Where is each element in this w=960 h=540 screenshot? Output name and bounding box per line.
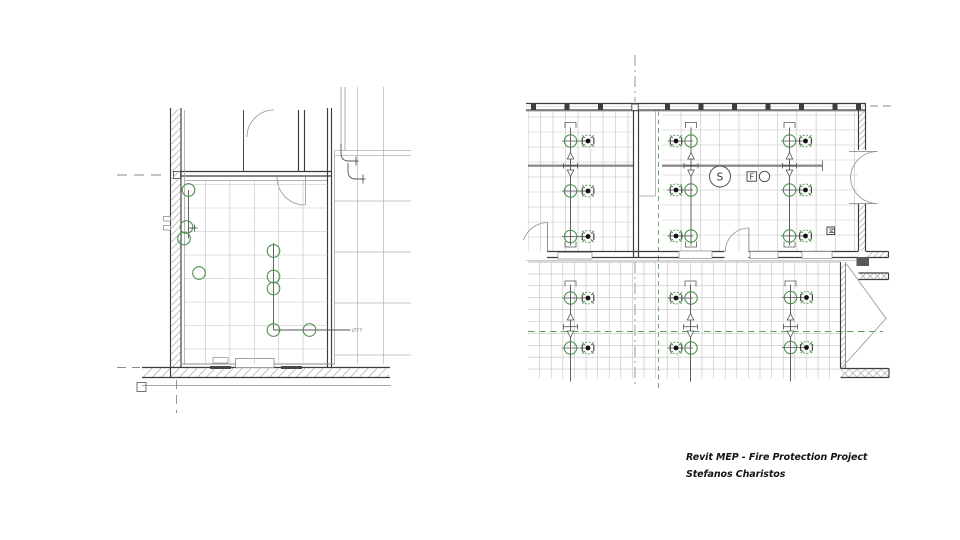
project-title: Revit MEP - Fire Protection Project	[686, 449, 867, 466]
entry-details	[210, 358, 302, 370]
wall-corner-block	[857, 257, 870, 266]
pipe-end-bracket	[565, 123, 576, 129]
door-swings	[247, 110, 306, 205]
sprinkler-head	[193, 267, 206, 280]
sprinkler-pair	[782, 341, 813, 353]
wall-hatch	[841, 105, 889, 378]
title-block: Revit MEP - Fire Protection Project Stef…	[686, 449, 867, 483]
corridor-grid	[335, 87, 412, 364]
grid-bubble	[137, 383, 146, 392]
wall-jambs	[164, 217, 171, 231]
sprinkler-pair	[668, 184, 698, 196]
ceiling-grid	[185, 181, 328, 364]
sprinkler-pair	[668, 342, 698, 354]
smoke-detector-symbol: S	[710, 166, 731, 187]
sprinkler-pair	[668, 135, 698, 147]
mullion	[531, 104, 536, 111]
mullion	[565, 104, 570, 111]
sprinkler-pair	[562, 342, 594, 354]
ceiling-grids	[528, 111, 858, 379]
mullion	[598, 104, 603, 111]
drawing-canvas: Ø77	[0, 0, 960, 540]
author-name: Stefanos Charistos	[686, 466, 867, 483]
sprinkler-heads	[178, 184, 316, 337]
branch-pipes	[189, 190, 351, 330]
mullion	[766, 104, 771, 111]
sprinkler-pair	[562, 292, 594, 304]
sprinkler-pair	[782, 291, 813, 303]
mullion	[833, 104, 838, 111]
interior-wall	[634, 110, 639, 258]
sprinkler-pair	[781, 230, 812, 242]
grid-bubble	[632, 104, 638, 110]
mullion	[699, 104, 704, 111]
pipe-size-note: Ø77	[351, 327, 363, 334]
sprinkler-pair	[781, 184, 812, 196]
right-plan-view: S F M	[524, 55, 892, 388]
monitor-module-label: M	[827, 228, 835, 234]
smoke-detector-label: S	[717, 171, 724, 183]
grid-bubble	[174, 172, 181, 179]
left-plan-view: Ø77	[117, 87, 411, 413]
fire-alarm-label: F	[749, 173, 754, 182]
mullion	[799, 104, 804, 111]
pipe-end-bracket	[784, 123, 795, 129]
pipe-end-bracket	[686, 123, 697, 129]
sprinkler-pair	[781, 135, 812, 147]
alcove	[639, 111, 656, 196]
sprinkler-pair	[668, 230, 698, 242]
mullion	[665, 104, 670, 111]
monitor-module-symbol: M	[827, 227, 835, 235]
mullion	[732, 104, 737, 111]
top-wall	[526, 104, 866, 111]
sprinkler-pair	[668, 292, 698, 304]
